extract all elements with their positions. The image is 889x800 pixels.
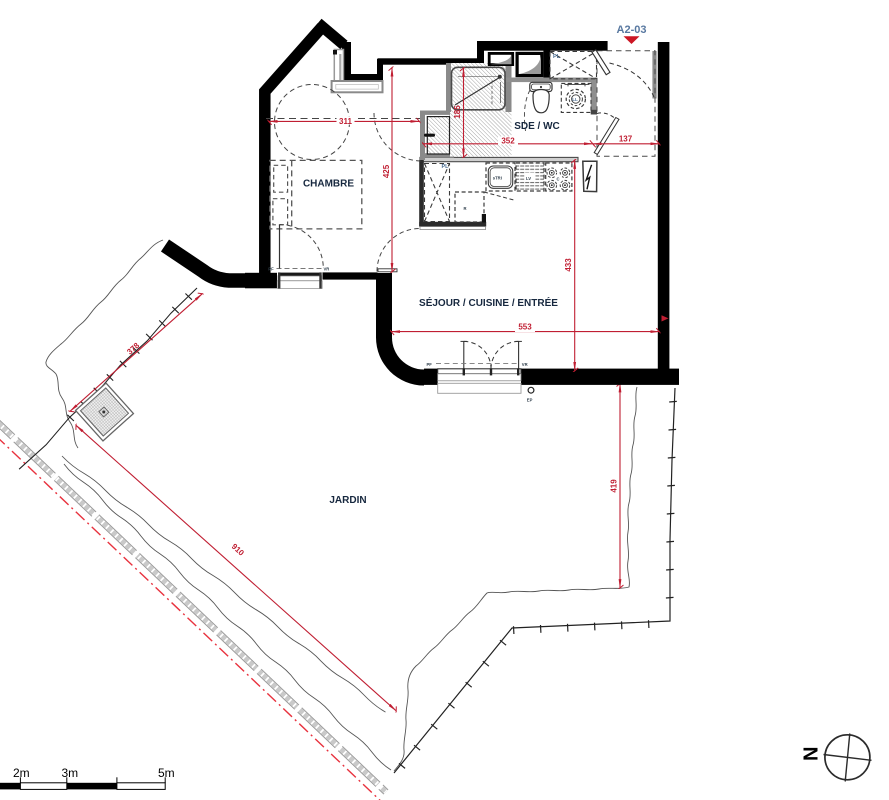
svg-text:C: C (557, 177, 560, 182)
svg-text:433: 433 (564, 258, 573, 272)
svg-text:LL: LL (572, 97, 578, 102)
svg-text:PL: PL (442, 164, 450, 170)
svg-text:2m: 2m (13, 766, 30, 780)
svg-text:LV: LV (526, 176, 531, 181)
svg-text:5m: 5m (158, 766, 175, 780)
svg-text:sTRI: sTRI (493, 176, 502, 181)
svg-text:EP: EP (527, 398, 533, 403)
svg-text:SÉJOUR / CUISINE / ENTRÉE: SÉJOUR / CUISINE / ENTRÉE (419, 296, 558, 309)
svg-text:352: 352 (501, 137, 515, 146)
svg-text:PL: PL (553, 54, 561, 60)
svg-text:419: 419 (610, 479, 619, 493)
svg-text:137: 137 (619, 135, 633, 144)
svg-text:VR: VR (522, 362, 528, 367)
svg-text:R: R (464, 206, 467, 211)
svg-text:425: 425 (382, 164, 391, 178)
svg-text:PF: PF (427, 362, 433, 367)
svg-text:SDE / WC: SDE / WC (514, 121, 560, 132)
svg-text:A2-03: A2-03 (617, 24, 647, 36)
svg-text:JARDIN: JARDIN (329, 495, 366, 506)
svg-text:185: 185 (453, 105, 462, 119)
svg-text:N: N (801, 747, 823, 761)
svg-text:311: 311 (339, 117, 352, 126)
svg-text:VR: VR (324, 266, 330, 271)
svg-text:3m: 3m (62, 766, 79, 780)
svg-text:553: 553 (518, 322, 532, 331)
svg-text:CHAMBRE: CHAMBRE (303, 179, 354, 190)
svg-text:PF: PF (268, 266, 274, 271)
